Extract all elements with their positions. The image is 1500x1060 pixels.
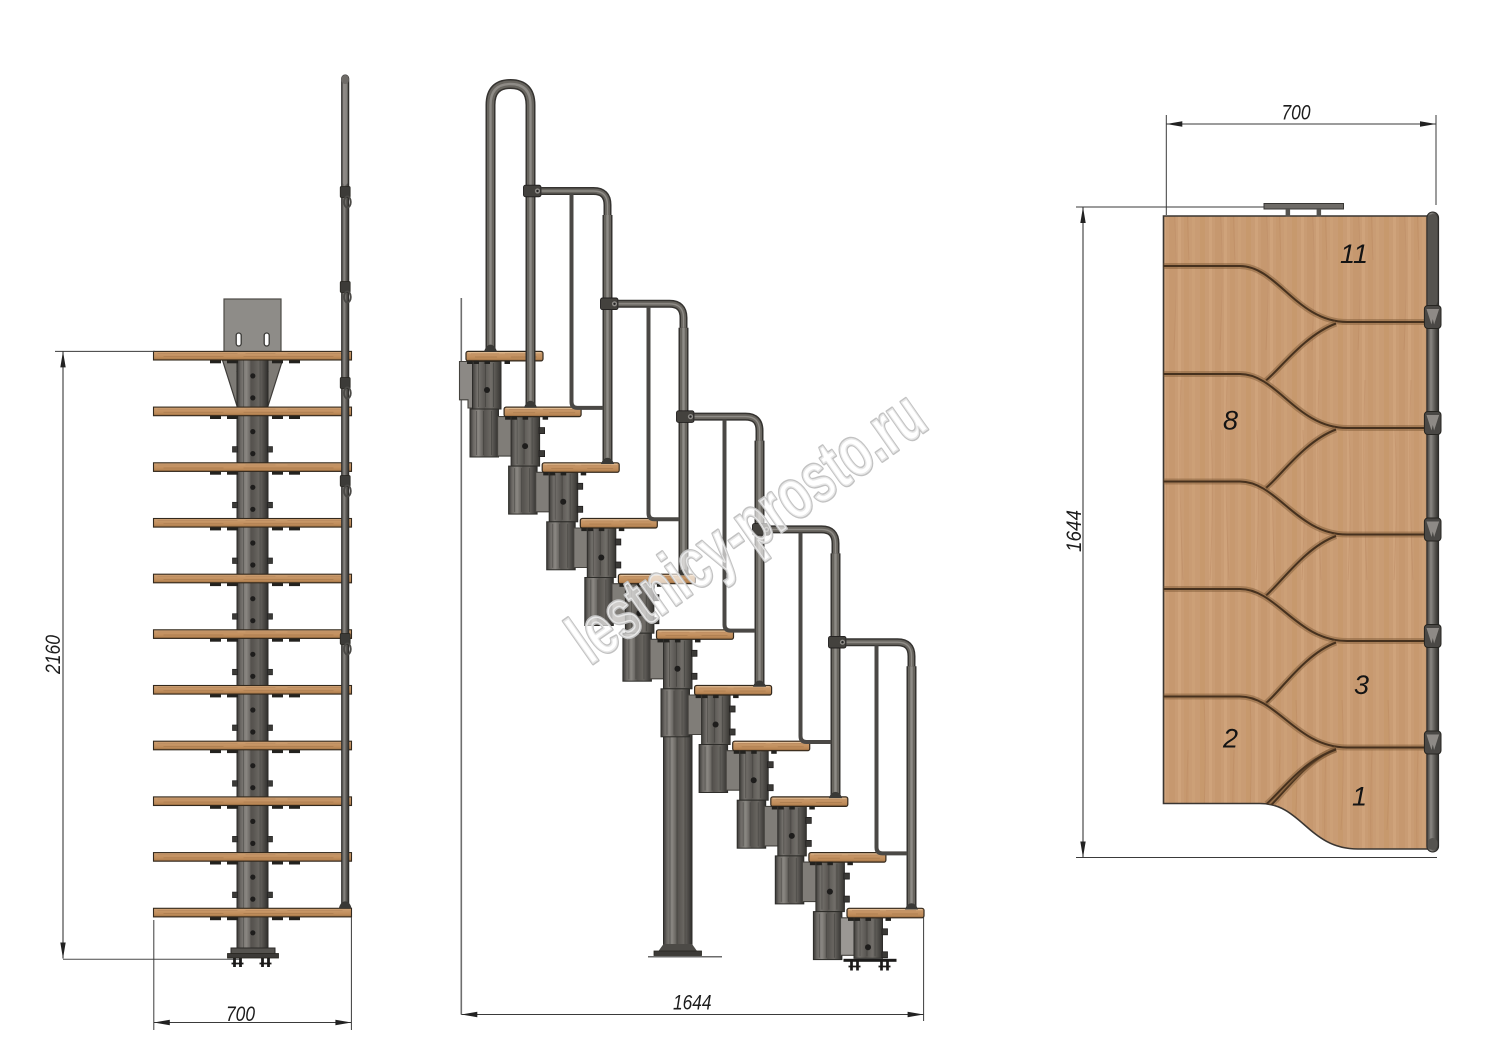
svg-text:700: 700 (226, 1003, 255, 1026)
svg-text:2160: 2160 (42, 635, 65, 675)
svg-text:11: 11 (1340, 239, 1368, 269)
svg-text:1: 1 (1352, 782, 1367, 812)
svg-text:1644: 1644 (1063, 510, 1086, 552)
svg-text:8: 8 (1223, 406, 1238, 436)
svg-text:2: 2 (1222, 724, 1238, 754)
svg-text:3: 3 (1354, 670, 1369, 700)
svg-text:1644: 1644 (673, 992, 712, 1015)
svg-text:700: 700 (1282, 102, 1311, 125)
